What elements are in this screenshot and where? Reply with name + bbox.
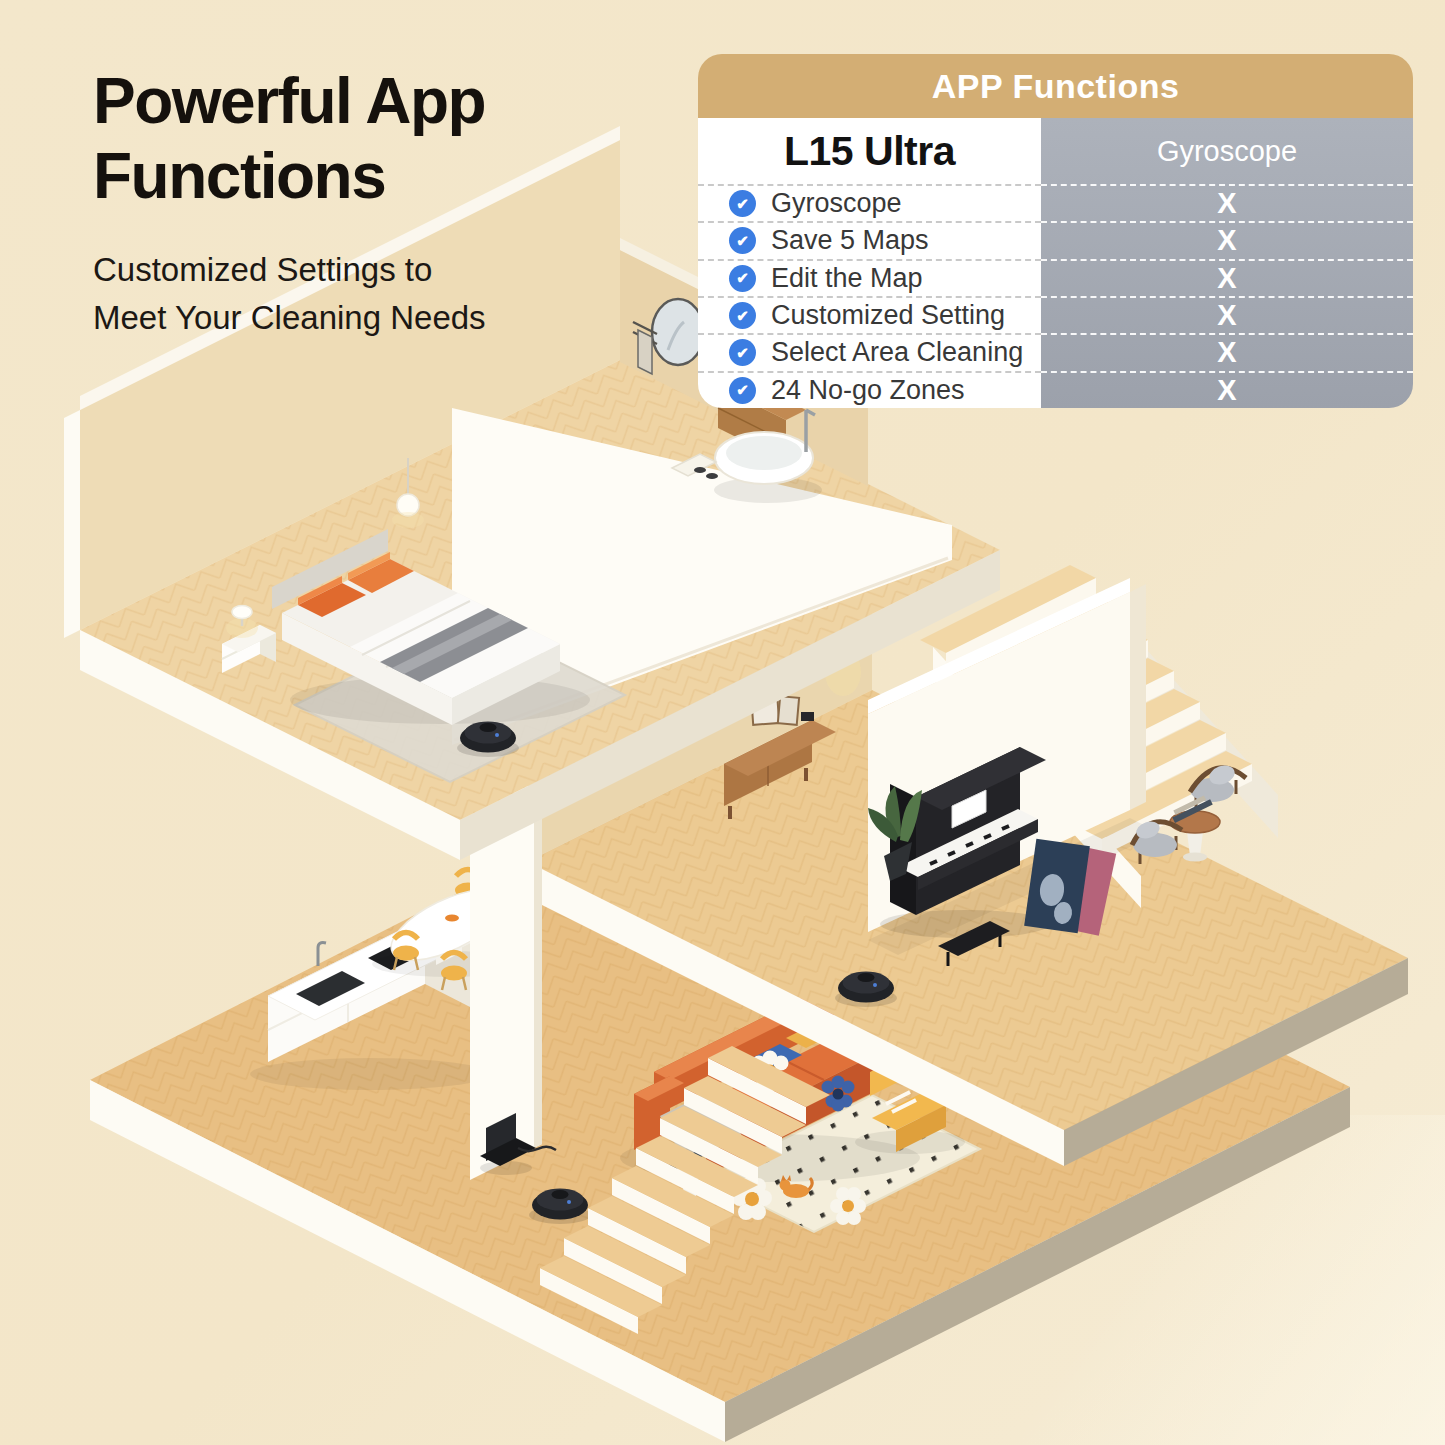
fruit-bowl [445,915,459,922]
title-line-2: Functions [93,139,486,214]
headline-block: Powerful App Functions Customized Settin… [93,64,486,341]
product-name: L15 Ultra [698,118,1041,184]
x-mark: X [1041,259,1413,296]
table-body: L15 Ultra ✔ Gyroscope ✔ Save 5 Maps ✔ Ed… [698,118,1413,408]
comparison-table: APP Functions L15 Ultra ✔ Gyroscope ✔ Sa… [698,54,1413,408]
check-icon: ✔ [729,377,756,404]
feature-label: Edit the Map [771,263,923,294]
feature-row: ✔ Save 5 Maps [698,221,1041,258]
mirror [652,299,704,365]
competitor-column: Gyroscope X X X X X X [1041,118,1413,408]
check-icon: ✔ [729,227,756,254]
page-subtitle: Customized Settings to Meet Your Cleanin… [93,246,486,342]
feature-label: Customized Setting [771,300,1005,331]
x-mark: X [1041,184,1413,221]
x-mark: X [1041,221,1413,258]
feature-label: Save 5 Maps [771,225,929,256]
title-line-1: Powerful App [93,64,486,139]
speaker [801,712,814,721]
product-column: L15 Ultra ✔ Gyroscope ✔ Save 5 Maps ✔ Ed… [698,118,1041,408]
subtitle-line-2: Meet Your Cleaning Needs [93,294,486,342]
x-mark: X [1041,296,1413,333]
page-title: Powerful App Functions [93,64,486,214]
competitor-name: Gyroscope [1041,118,1413,184]
x-mark: X [1041,333,1413,370]
feature-row: ✔ Gyroscope [698,184,1041,221]
marketing-graphic: Powerful App Functions Customized Settin… [0,0,1445,1445]
subtitle-line-1: Customized Settings to [93,246,486,294]
check-icon: ✔ [729,190,756,217]
table-header: APP Functions [698,54,1413,118]
feature-label: 24 No-go Zones [771,375,965,406]
feature-row: ✔ Select Area Cleaning [698,333,1041,370]
feature-label: Gyroscope [771,188,902,219]
check-icon: ✔ [729,339,756,366]
check-icon: ✔ [729,265,756,292]
feature-label: Select Area Cleaning [771,337,1023,368]
feature-row: ✔ Customized Setting [698,296,1041,333]
feature-row: ✔ 24 No-go Zones [698,371,1041,408]
x-mark: X [1041,371,1413,408]
check-icon: ✔ [729,302,756,329]
feature-row: ✔ Edit the Map [698,259,1041,296]
